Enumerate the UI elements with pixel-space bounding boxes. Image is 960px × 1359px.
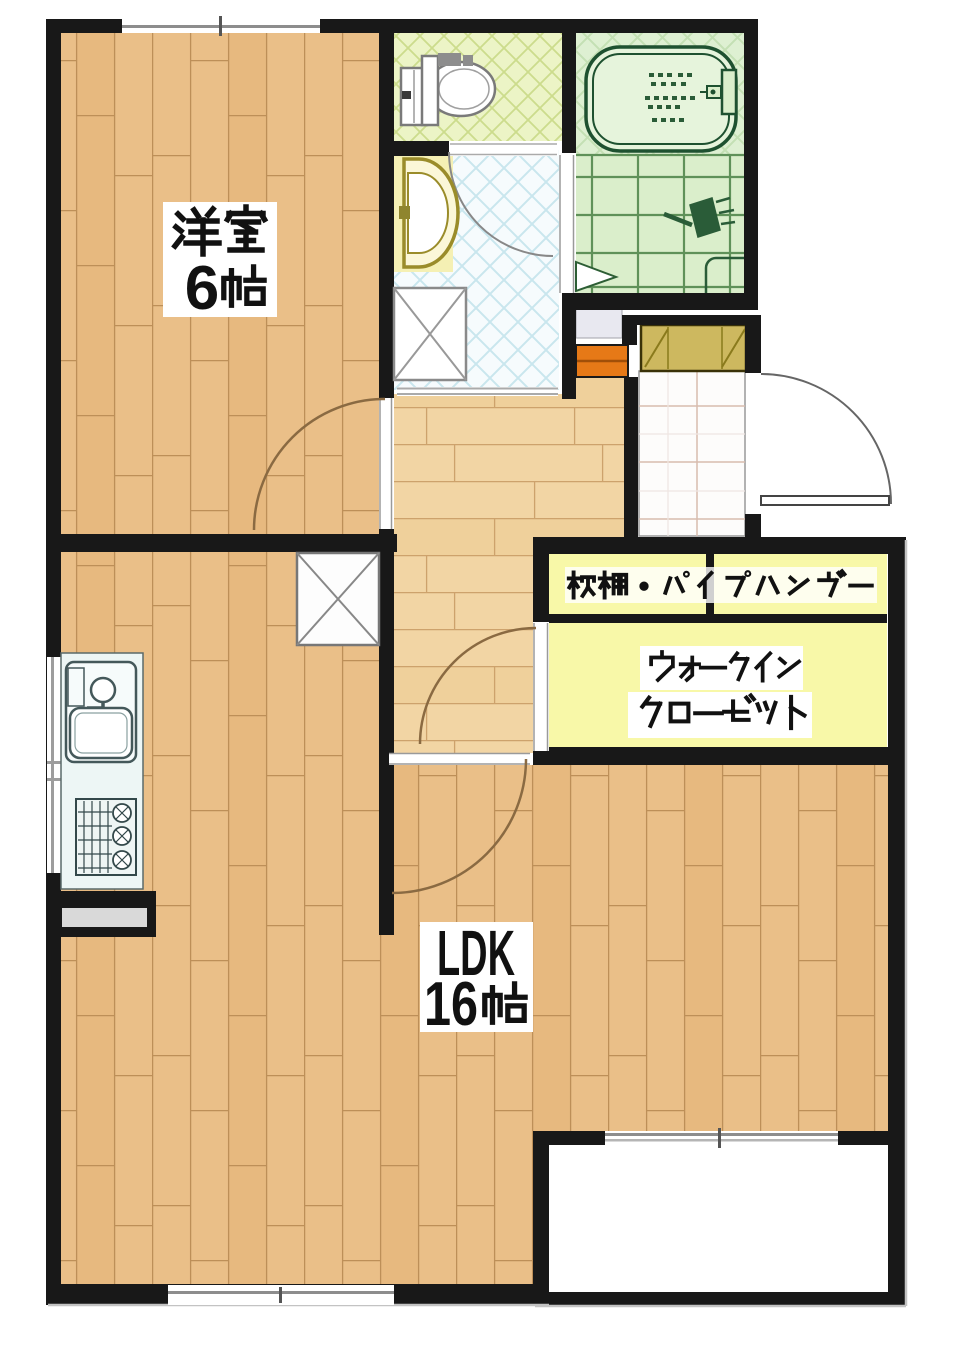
svg-text:6: 6 xyxy=(185,254,219,323)
svg-text:16: 16 xyxy=(424,970,478,1039)
